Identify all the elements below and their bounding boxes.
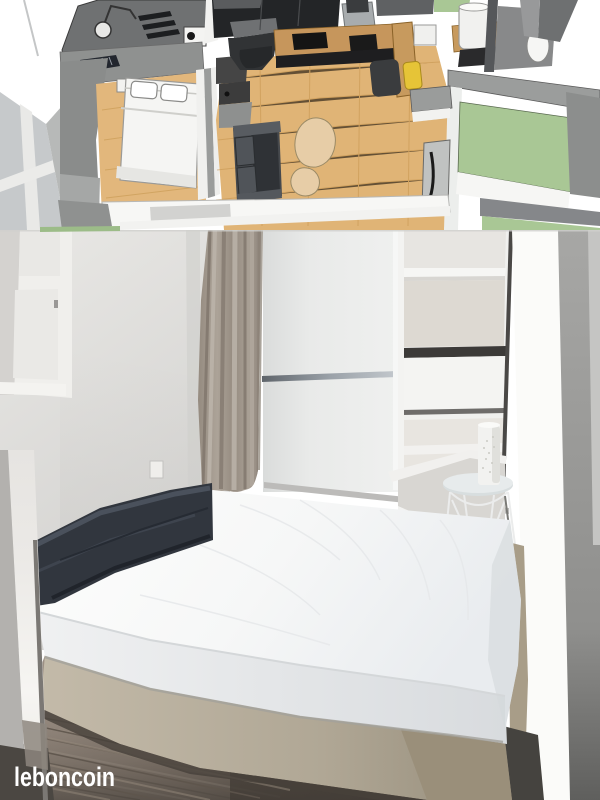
svg-text:leboncoin: leboncoin <box>14 762 115 792</box>
